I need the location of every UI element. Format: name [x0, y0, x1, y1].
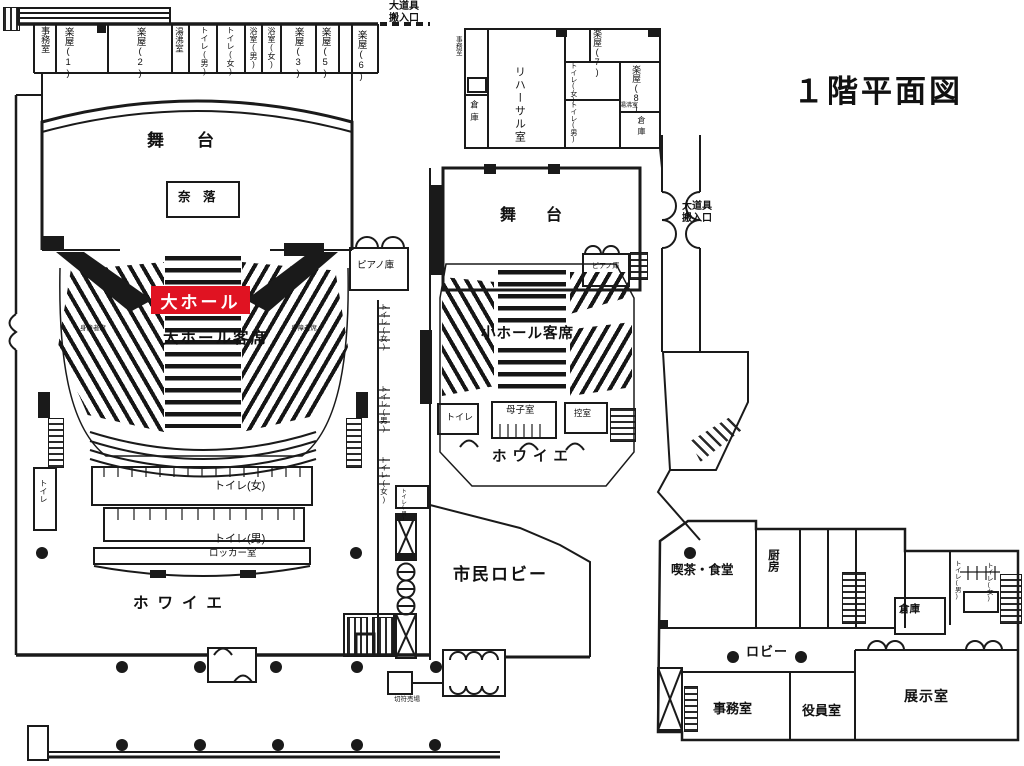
room-label-stage-main: 舞 台 — [147, 131, 222, 150]
room-label-bath-m: 浴室(男) — [248, 27, 257, 69]
walls-linework — [0, 0, 1024, 766]
room-label-dressing-7: 楽屋(7) — [592, 29, 602, 77]
room-label-toilet-f-nw: トイレ(女) — [225, 26, 234, 76]
room-label-exhibition: 展示室 — [904, 689, 949, 705]
room-label-dressing-2: 楽屋(2) — [134, 27, 145, 79]
floor-plan: 大ホール １階平面図 事務室 楽屋(1) 楽屋(2) 湯沸室 トイレ(男) トイ… — [0, 0, 1024, 766]
room-label-piano-main: ピアノ庫 — [357, 261, 394, 272]
room-label-prop-entrance-top: 大道具 搬入口 — [378, 1, 430, 24]
room-label-office-backstage: 事務室 — [454, 36, 461, 56]
room-label-storage-rehearsal: 倉庫 — [469, 100, 479, 125]
room-label-piano-small: ピアノ庫 — [592, 263, 619, 271]
room-label-foyer-small: ホワイエ — [492, 449, 574, 465]
room-label-mother-child: 母子室 — [506, 406, 535, 417]
room-label-small-hall-seats: 小ホール客席 — [481, 326, 574, 342]
page-title: １階平面図 — [793, 66, 963, 111]
room-label-disabled-right: 身障者席 — [291, 325, 317, 332]
room-label-toilet-f-strip2: トイレ(女) — [379, 456, 387, 504]
room-label-dressing-3: 楽屋(3) — [292, 27, 303, 79]
room-label-storage-annex: 倉庫 — [899, 604, 920, 616]
room-label-toilet-m-main: トイレ(男) — [214, 533, 265, 545]
room-label-stage-small: 舞 台 — [500, 207, 569, 225]
room-label-toilet-small-hall: トイレ — [446, 412, 473, 422]
room-label-storage-ne: 倉庫 — [636, 116, 645, 138]
room-label-cafe: 喫茶・食堂 — [671, 563, 734, 577]
room-label-bath-f: 浴室(女) — [266, 27, 275, 69]
room-label-prop-entrance-right: 大道具 搬入口 — [672, 201, 722, 224]
room-label-locker: ロッカー室 — [209, 549, 257, 560]
room-label-kettle-nw: 湯沸室 — [174, 27, 184, 53]
room-label-dressing-5: 楽屋(5) — [319, 27, 330, 79]
room-label-toilet-m-strip-small: トイレ(男) — [400, 488, 406, 522]
room-label-toilet-m-annex: トイレ(男) — [953, 560, 960, 600]
room-label-naraku: 奈 落 — [178, 190, 216, 204]
room-label-toilet-m-nw: トイレ(男) — [199, 26, 208, 76]
room-label-kettle-ne: 湯沸室 — [620, 103, 638, 110]
room-label-toilet-f-main: トイレ(女) — [214, 480, 265, 492]
room-label-toilet-f-annex: トイレ(女) — [985, 562, 992, 602]
room-label-lobby-annex: ロビー — [746, 645, 788, 660]
room-label-kitchen: 厨房 — [766, 549, 779, 572]
room-label-toilet-f-strip1: トイレ(女) — [379, 303, 387, 351]
room-label-civic-lobby: 市民ロビー — [453, 565, 548, 584]
room-label-office-nw: 事務室 — [40, 26, 50, 53]
room-label-office-annex: 事務室 — [713, 702, 752, 717]
room-label-toilet-west: トイレ — [38, 479, 47, 503]
room-label-dressing-6: 楽屋(6) — [355, 30, 366, 82]
room-label-waiting: 控室 — [574, 409, 591, 419]
main-hall-highlight: 大ホール — [151, 286, 250, 314]
room-label-toilet-f-ne: トイレ(女) — [569, 62, 577, 104]
room-label-toilet-m-strip: トイレ(男) — [379, 385, 387, 433]
room-label-dressing-1: 楽屋(1) — [62, 27, 73, 79]
room-label-rehearsal: リハーサル室 — [513, 66, 525, 144]
room-label-disabled-left: 身障者席 — [80, 325, 106, 332]
room-label-toilet-m-ne: トイレ(男) — [569, 101, 577, 143]
room-label-ticket-booth: 切符売場 — [394, 696, 420, 703]
room-label-foyer-main: ホワイエ — [133, 595, 231, 612]
room-label-main-hall-seats: 大ホール客席 — [163, 330, 268, 347]
room-label-executive: 役員室 — [802, 704, 841, 719]
